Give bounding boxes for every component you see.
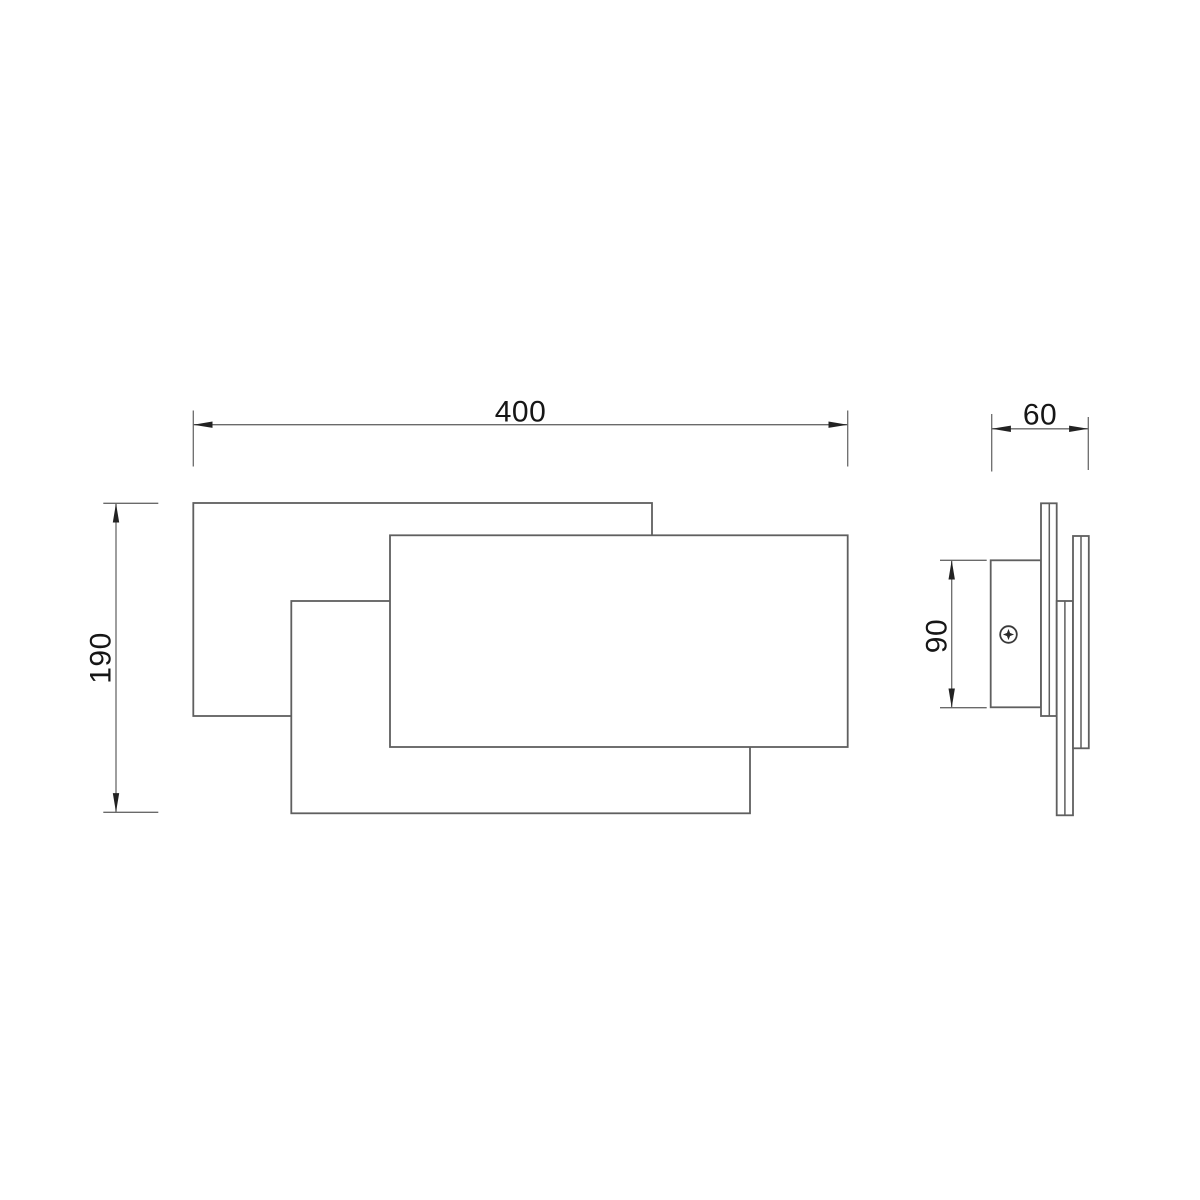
dimension-label-depth: 60 xyxy=(1023,399,1057,432)
dimension-overall-width: 400 xyxy=(193,396,847,467)
dimension-overall-height: 190 xyxy=(85,503,159,812)
dimension-label-bracket-height: 90 xyxy=(921,619,954,653)
drawing-canvas: 400 190 60 90 xyxy=(0,0,1200,1200)
arrow-right-icon xyxy=(829,422,848,428)
dimension-label-width: 400 xyxy=(495,396,547,429)
arrow-left-icon xyxy=(193,422,212,428)
side-view xyxy=(991,503,1089,815)
arrow-right-icon xyxy=(1069,426,1088,432)
arrow-down-icon xyxy=(113,793,119,812)
mounting-screw xyxy=(1000,626,1017,643)
arrow-down-icon xyxy=(949,689,955,708)
arrow-up-icon xyxy=(949,560,955,579)
front-view xyxy=(193,503,847,813)
arrow-left-icon xyxy=(992,426,1011,432)
arrow-up-icon xyxy=(113,503,119,522)
dimension-label-height: 190 xyxy=(85,632,118,684)
technical-drawing: 400 190 60 90 xyxy=(0,0,1200,1200)
dimension-bracket-height: 90 xyxy=(921,560,987,707)
front-right-panel xyxy=(390,535,848,747)
dimension-overall-depth: 60 xyxy=(992,399,1089,472)
